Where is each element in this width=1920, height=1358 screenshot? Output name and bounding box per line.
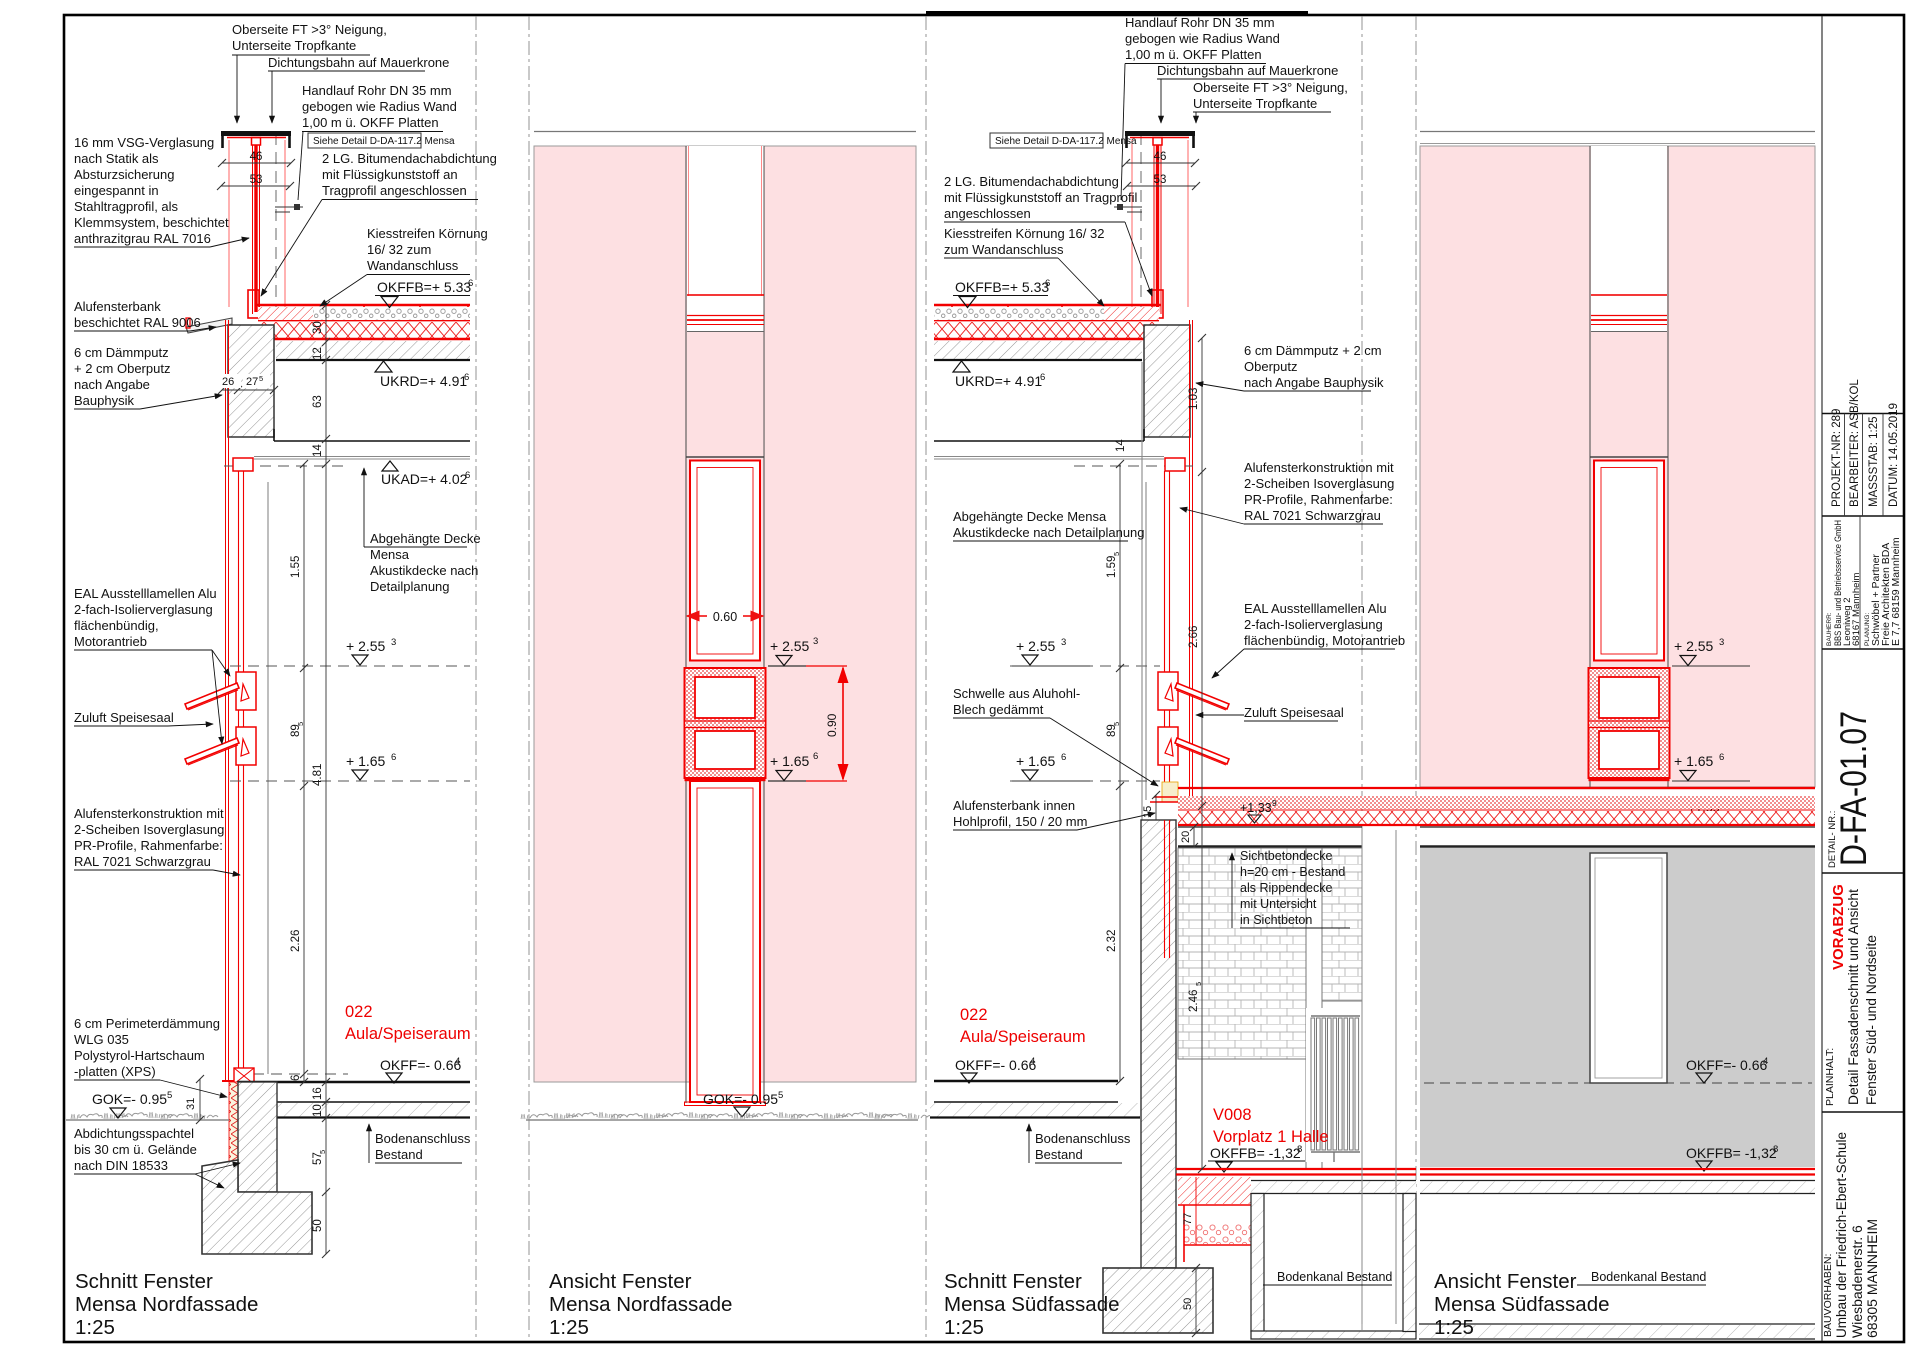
svg-text:1.03: 1.03 — [1188, 388, 1200, 410]
svg-text:16: 16 — [312, 1087, 324, 1100]
svg-text:UKRD=+ 4.91: UKRD=+ 4.91 — [380, 373, 467, 389]
svg-text:+ 2.55: + 2.55 — [1674, 638, 1714, 654]
svg-text:15: 15 — [1142, 806, 1154, 818]
svg-text:+1,33: +1,33 — [1240, 801, 1272, 815]
svg-text:1.55: 1.55 — [290, 556, 302, 578]
svg-text:-platten (XPS): -platten (XPS) — [74, 1064, 156, 1079]
svg-text:DATUM: 14.05.2019: DATUM: 14.05.2019 — [1888, 403, 1900, 507]
svg-text:Motorantrieb: Motorantrieb — [74, 634, 147, 649]
svg-text:Bodenanschluss: Bodenanschluss — [375, 1131, 471, 1146]
svg-text:Bauphysik: Bauphysik — [74, 393, 134, 408]
svg-text:6: 6 — [1040, 372, 1045, 383]
svg-text:6: 6 — [290, 1075, 302, 1081]
svg-text:Mensa Nordfassade: Mensa Nordfassade — [549, 1293, 732, 1316]
svg-text:1:25: 1:25 — [75, 1316, 115, 1339]
svg-text:2 LG. Bitumendachabdichtung: 2 LG. Bitumendachabdichtung — [322, 151, 497, 166]
svg-text:RAL 7021 Schwarzgrau: RAL 7021 Schwarzgrau — [1244, 508, 1381, 523]
svg-text:1.59: 1.59 — [1106, 556, 1118, 578]
svg-text:5: 5 — [318, 1150, 327, 1154]
svg-text:Bodenanschluss: Bodenanschluss — [1035, 1131, 1131, 1146]
svg-text:12: 12 — [312, 347, 324, 360]
svg-text:5: 5 — [296, 722, 305, 726]
svg-text:OKFF=- 0.66: OKFF=- 0.66 — [380, 1057, 462, 1073]
svg-text:+ 2 cm Oberputz: + 2 cm Oberputz — [74, 361, 170, 376]
svg-text:als Rippendecke: als Rippendecke — [1240, 881, 1332, 895]
svg-text:27: 27 — [246, 376, 258, 388]
svg-text:3: 3 — [391, 637, 396, 648]
svg-text:2-fach-Isolierverglasung: 2-fach-Isolierverglasung — [1244, 617, 1383, 632]
svg-text:UKRD=+ 4.91: UKRD=+ 4.91 — [955, 373, 1042, 389]
svg-text:Schnitt Fenster: Schnitt Fenster — [944, 1270, 1082, 1293]
svg-text:2.66: 2.66 — [1188, 626, 1200, 648]
svg-text:6: 6 — [1045, 278, 1050, 289]
svg-text:PR-Profile, Rahmenfarbe:: PR-Profile, Rahmenfarbe: — [1244, 492, 1393, 507]
svg-text:UKAD=+ 4.02: UKAD=+ 4.02 — [381, 471, 468, 487]
svg-text:Oberputz: Oberputz — [1244, 359, 1297, 374]
svg-text:26: 26 — [222, 376, 234, 388]
svg-text:6 cm Dämmputz: 6 cm Dämmputz — [74, 345, 169, 360]
svg-text:6: 6 — [391, 752, 396, 763]
svg-text:6 cm Dämmputz + 2 cm: 6 cm Dämmputz + 2 cm — [1244, 343, 1382, 358]
svg-text:Mensa: Mensa — [370, 547, 410, 562]
svg-text:Oberseite FT >3° Neigung,: Oberseite FT >3° Neigung, — [232, 22, 387, 37]
svg-text:Abgehängte Decke Mensa: Abgehängte Decke Mensa — [953, 509, 1107, 524]
svg-text:53: 53 — [250, 174, 263, 186]
svg-text:4: 4 — [455, 1056, 460, 1067]
svg-text:nach Angabe: nach Angabe — [74, 377, 150, 392]
svg-text:+ 2.55: + 2.55 — [346, 638, 386, 654]
svg-text:5: 5 — [1194, 982, 1203, 986]
svg-text:Alufensterkonstruktion mit: Alufensterkonstruktion mit — [1244, 460, 1394, 475]
svg-text:Sichtbetondecke: Sichtbetondecke — [1240, 849, 1332, 863]
svg-text:2.26: 2.26 — [290, 930, 302, 952]
svg-text:1,00 m ü. OKFF Platten: 1,00 m ü. OKFF Platten — [1125, 47, 1262, 62]
svg-text:Stahltragprofil, als: Stahltragprofil, als — [74, 199, 179, 214]
svg-text:flächenbündig, Motorantrieb: flächenbündig, Motorantrieb — [1244, 633, 1405, 648]
svg-text:EAL Ausstelllamellen Alu: EAL Ausstelllamellen Alu — [1244, 601, 1387, 616]
svg-text:1:25: 1:25 — [1434, 1316, 1474, 1339]
svg-text:9: 9 — [1272, 798, 1277, 808]
svg-text:eingespannt in: eingespannt in — [74, 183, 159, 198]
svg-text:Bodenkanal Bestand: Bodenkanal Bestand — [1277, 1270, 1392, 1284]
svg-text:Detailplanung: Detailplanung — [370, 579, 450, 594]
svg-text:OKFF=- 0.66: OKFF=- 0.66 — [1686, 1057, 1768, 1073]
svg-text:6: 6 — [465, 470, 470, 481]
svg-text:OKFFB=+ 5.33: OKFFB=+ 5.33 — [377, 279, 471, 295]
svg-text:Absturzsicherung: Absturzsicherung — [74, 167, 174, 182]
svg-text:Alufensterbank: Alufensterbank — [74, 299, 161, 314]
svg-text:46: 46 — [250, 151, 263, 163]
svg-text:Handlauf Rohr DN 35 mm: Handlauf Rohr DN 35 mm — [1125, 15, 1275, 30]
svg-text:Mensa Südfassade: Mensa Südfassade — [944, 1293, 1120, 1316]
svg-text:68167 Mannheim: 68167 Mannheim — [1851, 573, 1862, 646]
svg-text:16 mm VSG-Verglasung: 16 mm VSG-Verglasung — [74, 135, 214, 150]
svg-text:+ 2.55: + 2.55 — [1016, 638, 1056, 654]
svg-text:OKFFB=+ 5.33: OKFFB=+ 5.33 — [955, 279, 1049, 295]
svg-text:Umbau der Friedrich-Ebert-Schu: Umbau der Friedrich-Ebert-Schule — [1833, 1132, 1849, 1338]
svg-text:Dichtungsbahn auf Mauerkrone: Dichtungsbahn auf Mauerkrone — [1157, 63, 1338, 78]
svg-text:0.60: 0.60 — [713, 610, 737, 624]
svg-text:Blech gedämmt: Blech gedämmt — [953, 702, 1044, 717]
svg-text:0.90: 0.90 — [825, 713, 839, 737]
svg-text:5: 5 — [259, 374, 263, 383]
svg-text:+ 1.65: + 1.65 — [1016, 753, 1056, 769]
svg-text:angeschlossen: angeschlossen — [944, 206, 1031, 221]
svg-text:30: 30 — [312, 321, 324, 334]
svg-text:5: 5 — [1112, 552, 1121, 556]
svg-text:Kiesstreifen Körnung: Kiesstreifen Körnung — [367, 226, 488, 241]
svg-text:6: 6 — [1061, 752, 1066, 763]
svg-text:Bodenkanal Bestand: Bodenkanal Bestand — [1591, 1270, 1706, 1284]
svg-text:Vorplatz 1 Halle: Vorplatz 1 Halle — [1213, 1128, 1329, 1146]
svg-text:1:25: 1:25 — [944, 1316, 984, 1339]
svg-text:OKFF=- 0.66: OKFF=- 0.66 — [955, 1057, 1037, 1073]
svg-text:3: 3 — [813, 636, 818, 647]
svg-text:Tragprofil angeschlossen: Tragprofil angeschlossen — [322, 183, 467, 198]
svg-text:3: 3 — [1719, 637, 1724, 648]
svg-text:4: 4 — [1763, 1056, 1768, 1067]
svg-text:Abdichtungsspachtel: Abdichtungsspachtel — [74, 1126, 194, 1141]
svg-text:5: 5 — [1112, 722, 1121, 726]
svg-text:nach DIN 18533: nach DIN 18533 — [74, 1158, 168, 1173]
svg-text:8: 8 — [1773, 1144, 1778, 1155]
svg-text:Abgehängte Decke: Abgehängte Decke — [370, 531, 481, 546]
svg-text:beschichtet RAL 9006: beschichtet RAL 9006 — [74, 315, 201, 330]
svg-text:Dichtungsbahn auf Mauerkrone: Dichtungsbahn auf Mauerkrone — [268, 55, 449, 70]
svg-text:Siehe Detail D-DA-117.2 Mensa: Siehe Detail D-DA-117.2 Mensa — [995, 136, 1137, 147]
svg-text:16/ 32 zum: 16/ 32 zum — [367, 242, 431, 257]
svg-text:4.81: 4.81 — [312, 764, 324, 786]
svg-text:Schwelle aus Aluhohl-: Schwelle aus Aluhohl- — [953, 686, 1080, 701]
svg-text:mit Flüssigkunststoff an: mit Flüssigkunststoff an — [322, 167, 458, 182]
svg-text:Zuluft Speisesaal: Zuluft Speisesaal — [1244, 705, 1344, 720]
svg-text:20: 20 — [1180, 831, 1192, 843]
svg-text:Bestand: Bestand — [1035, 1147, 1083, 1162]
svg-text:Akustikdecke nach: Akustikdecke nach — [370, 563, 478, 578]
svg-text:GOK=- 0.95: GOK=- 0.95 — [92, 1091, 167, 1107]
svg-text:Ansicht Fenster: Ansicht Fenster — [549, 1270, 692, 1293]
svg-text:10: 10 — [312, 1104, 324, 1117]
svg-text:14: 14 — [312, 444, 324, 457]
svg-text:77: 77 — [1182, 1213, 1194, 1225]
svg-text:6: 6 — [1719, 752, 1724, 763]
svg-text:5: 5 — [778, 1090, 783, 1101]
svg-text:D-FA-01.07: D-FA-01.07 — [1833, 711, 1874, 866]
svg-text:PROJEKT-NR: 289: PROJEKT-NR: 289 — [1831, 409, 1843, 507]
svg-text:Kiesstreifen Körnung 16/ 32: Kiesstreifen Körnung 16/ 32 — [944, 226, 1104, 241]
svg-text:022: 022 — [345, 1003, 373, 1021]
svg-text:Wiesbadenerstr. 6: Wiesbadenerstr. 6 — [1849, 1225, 1865, 1338]
svg-text:Unterseite Tropfkante: Unterseite Tropfkante — [232, 38, 356, 53]
svg-text:gebogen wie Radius Wand: gebogen wie Radius Wand — [1125, 31, 1280, 46]
svg-text:Zuluft Speisesaal: Zuluft Speisesaal — [74, 710, 174, 725]
svg-text:RAL 7021 Schwarzgrau: RAL 7021 Schwarzgrau — [74, 854, 211, 869]
svg-text:h=20 cm - Bestand: h=20 cm - Bestand — [1240, 865, 1345, 879]
svg-text:nach Angabe Bauphysik: nach Angabe Bauphysik — [1244, 375, 1384, 390]
svg-text:3: 3 — [1061, 637, 1066, 648]
svg-text:2-Scheiben Isoverglasung: 2-Scheiben Isoverglasung — [74, 822, 224, 837]
svg-text:Bestand: Bestand — [375, 1147, 423, 1162]
svg-text:bis 30 cm ü. Gelände: bis 30 cm ü. Gelände — [74, 1142, 197, 1157]
svg-text:8: 8 — [1297, 1144, 1302, 1155]
svg-text:53: 53 — [1154, 174, 1167, 186]
svg-text:Fenster Süd- und Nordseite: Fenster Süd- und Nordseite — [1863, 935, 1879, 1105]
svg-text:PLAINHALT:: PLAINHALT: — [1824, 1048, 1836, 1106]
svg-text:022: 022 — [960, 1006, 988, 1024]
svg-text:68305 MANNHEIM: 68305 MANNHEIM — [1864, 1219, 1880, 1338]
svg-text:2-Scheiben Isoverglasung: 2-Scheiben Isoverglasung — [1244, 476, 1394, 491]
svg-text:6: 6 — [464, 372, 469, 383]
svg-text:EAL Ausstelllamellen Alu: EAL Ausstelllamellen Alu — [74, 586, 217, 601]
svg-text:1:25: 1:25 — [549, 1316, 589, 1339]
svg-text:anthrazitgrau RAL 7016: anthrazitgrau RAL 7016 — [74, 231, 211, 246]
svg-text:6 cm Perimeterdämmung: 6 cm Perimeterdämmung — [74, 1016, 220, 1031]
svg-text:E 7,7 68159 Mannheim: E 7,7 68159 Mannheim — [1890, 537, 1902, 646]
svg-text:+ 1.65: + 1.65 — [1674, 753, 1714, 769]
svg-text:14: 14 — [1115, 439, 1127, 452]
svg-text:31: 31 — [185, 1098, 197, 1110]
svg-text:50: 50 — [1182, 1298, 1194, 1310]
svg-text:Akustikdecke nach Detailplanun: Akustikdecke nach Detailplanung — [953, 525, 1145, 540]
svg-text:WLG 035: WLG 035 — [74, 1032, 129, 1047]
svg-text:Mensa Südfassade: Mensa Südfassade — [1434, 1293, 1610, 1316]
svg-text:mit Flüssigkunststoff an Tragp: mit Flüssigkunststoff an Tragprofil — [944, 190, 1138, 205]
svg-text:Alufensterkonstruktion mit: Alufensterkonstruktion mit — [74, 806, 224, 821]
svg-text:MASSSTAB: 1:25: MASSSTAB: 1:25 — [1868, 416, 1880, 507]
svg-text:PR-Profile, Rahmenfarbe:: PR-Profile, Rahmenfarbe: — [74, 838, 223, 853]
svg-text:V008: V008 — [1213, 1106, 1252, 1124]
svg-text:Oberseite FT >3° Neigung,: Oberseite FT >3° Neigung, — [1193, 80, 1348, 95]
svg-text:zum Wandanschluss: zum Wandanschluss — [944, 242, 1064, 257]
svg-text:6: 6 — [813, 751, 818, 762]
svg-text:OKFFB= -1,32: OKFFB= -1,32 — [1686, 1145, 1777, 1161]
svg-text:2-fach-Isolierverglasung: 2-fach-Isolierverglasung — [74, 602, 213, 617]
svg-text:Polystyrol-Hartschaum: Polystyrol-Hartschaum — [74, 1048, 205, 1063]
svg-text:1,00 m ü. OKFF Platten: 1,00 m ü. OKFF Platten — [302, 115, 439, 130]
svg-text:+ 2.55: + 2.55 — [770, 638, 810, 654]
svg-text:Alufensterbank innen: Alufensterbank innen — [953, 798, 1075, 813]
svg-text:6: 6 — [468, 278, 473, 289]
svg-text:flächenbündig,: flächenbündig, — [74, 618, 159, 633]
svg-text:2.46: 2.46 — [1188, 990, 1200, 1012]
svg-text:2 LG. Bitumendachabdichtung: 2 LG. Bitumendachabdichtung — [944, 174, 1119, 189]
svg-text:gebogen wie Radius Wand: gebogen wie Radius Wand — [302, 99, 457, 114]
svg-text:50: 50 — [312, 1219, 324, 1232]
svg-text:Wandanschluss: Wandanschluss — [367, 258, 459, 273]
svg-text:4: 4 — [1030, 1056, 1035, 1067]
svg-text:mit Untersicht: mit Untersicht — [1240, 897, 1317, 911]
svg-text:Aula/Speiseraum: Aula/Speiseraum — [345, 1025, 471, 1043]
svg-text:63: 63 — [312, 395, 324, 408]
svg-text:Ansicht Fenster: Ansicht Fenster — [1434, 1270, 1577, 1293]
svg-text:+ 1.65: + 1.65 — [770, 753, 810, 769]
svg-text:46: 46 — [1154, 151, 1167, 163]
svg-text:2.32: 2.32 — [1106, 930, 1118, 952]
svg-text:Hohlprofil, 150 / 20 mm: Hohlprofil, 150 / 20 mm — [953, 814, 1087, 829]
svg-text:in Sichtbeton: in Sichtbeton — [1240, 913, 1312, 927]
svg-text:GOK=- 0.95: GOK=- 0.95 — [703, 1091, 778, 1107]
svg-text:5: 5 — [167, 1090, 172, 1101]
svg-text:Schnitt Fenster: Schnitt Fenster — [75, 1270, 213, 1293]
svg-text:BEARBEITER: ASB/KOL: BEARBEITER: ASB/KOL — [1849, 379, 1861, 507]
svg-text:Aula/Speiseraum: Aula/Speiseraum — [960, 1028, 1086, 1046]
svg-text:BAUHERR:: BAUHERR: — [1826, 612, 1833, 646]
svg-text:Unterseite Tropfkante: Unterseite Tropfkante — [1193, 96, 1317, 111]
svg-text:Detail Fassadenschnitt und Ans: Detail Fassadenschnitt und Ansicht — [1845, 889, 1861, 1105]
svg-text:Klemmsystem, beschichtet: Klemmsystem, beschichtet — [74, 215, 229, 230]
svg-text:+ 1.65: + 1.65 — [346, 753, 386, 769]
svg-text:OKFFB= -1,32: OKFFB= -1,32 — [1210, 1145, 1301, 1161]
svg-text:Siehe Detail D-DA-117.2 Mensa: Siehe Detail D-DA-117.2 Mensa — [313, 136, 455, 147]
svg-text:Mensa Nordfassade: Mensa Nordfassade — [75, 1293, 258, 1316]
svg-text:Handlauf Rohr DN 35 mm: Handlauf Rohr DN 35 mm — [302, 83, 452, 98]
svg-text:nach Statik als: nach Statik als — [74, 151, 159, 166]
